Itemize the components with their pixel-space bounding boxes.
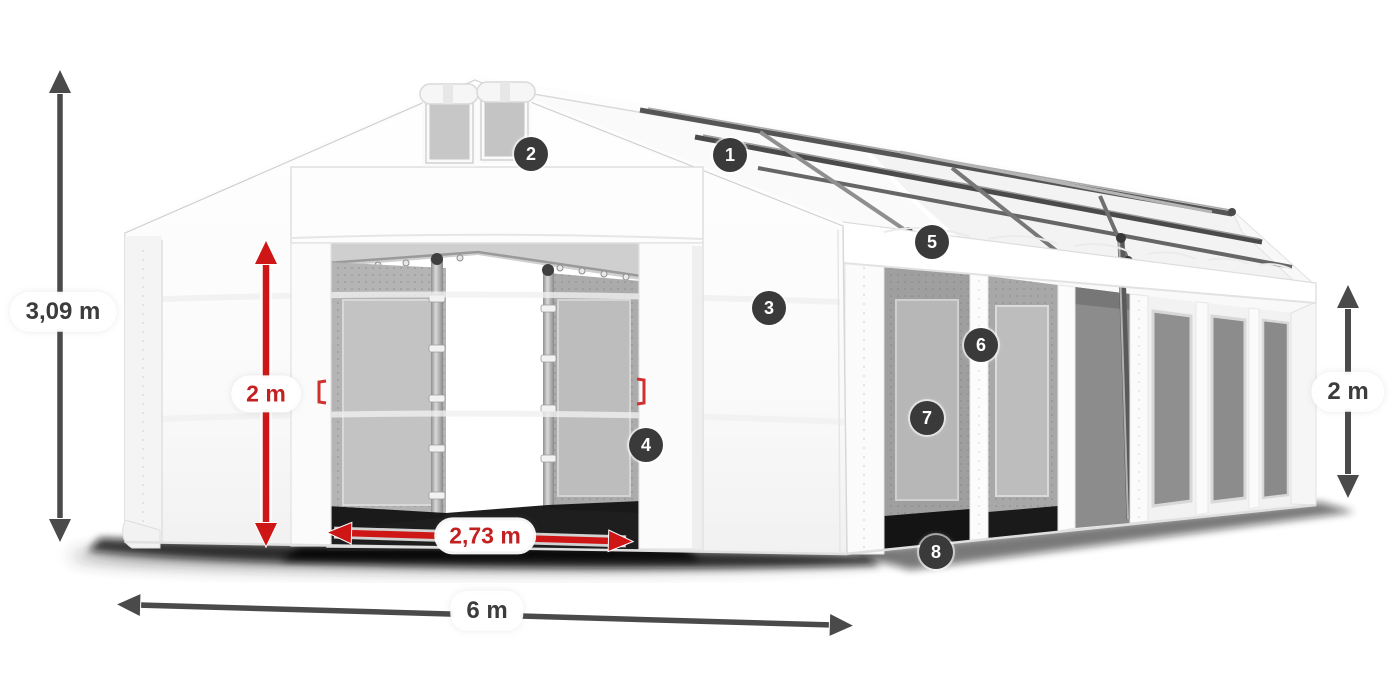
dimension-label-door-width: 2,73 m — [437, 520, 533, 551]
callout-badge-2[interactable]: 2 — [514, 137, 548, 171]
tent-illustration-canvas — [0, 0, 1400, 700]
dimension-label-front-width: 6 m — [453, 594, 520, 628]
callout-badge-7[interactable]: 7 — [910, 401, 944, 435]
callout-badge-3[interactable]: 3 — [752, 291, 786, 325]
dimension-label-side-height: 2 m — [1314, 375, 1381, 409]
front-door-interior — [327, 242, 641, 551]
callout-badge-8[interactable]: 8 — [919, 535, 953, 569]
dimension-label-total-height: 3,09 m — [13, 295, 114, 329]
vent-roll-left — [420, 84, 478, 104]
tent-dimension-diagram: 3,09 m 2 m 2,73 m 6 m 2 m 1 2 3 4 5 6 7 … — [0, 0, 1400, 700]
callout-badge-4[interactable]: 4 — [629, 428, 663, 462]
dimension-label-door-height: 2 m — [234, 378, 298, 409]
callout-badge-6[interactable]: 6 — [964, 328, 998, 362]
vent-roll-right — [477, 82, 535, 102]
callout-badge-5[interactable]: 5 — [915, 225, 949, 259]
callout-badge-1[interactable]: 1 — [713, 138, 747, 172]
